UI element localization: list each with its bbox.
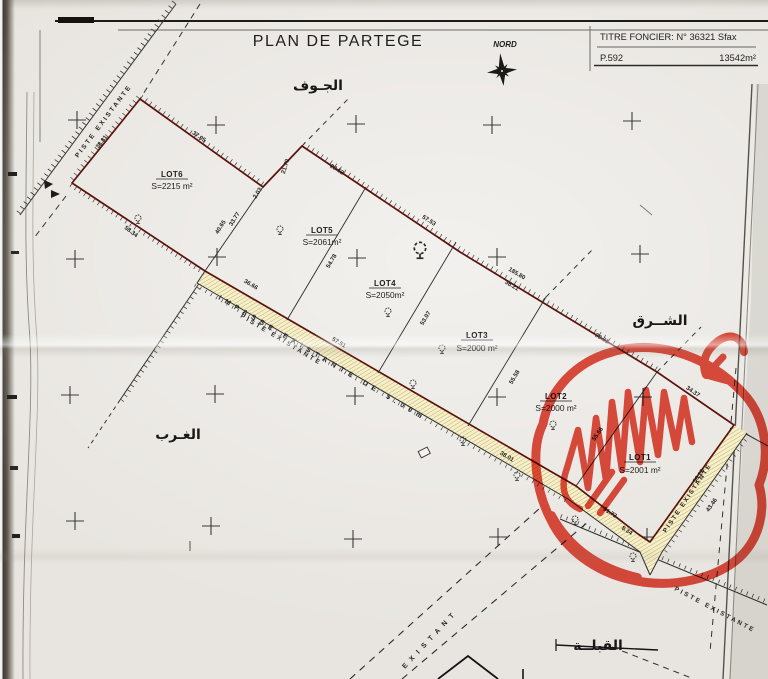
- lot-name: LOT6: [161, 170, 183, 179]
- building-symbol: [418, 447, 430, 458]
- olive-tree-icon: [514, 472, 520, 480]
- roads: [18, 2, 768, 679]
- olive-tree-icon: [277, 226, 283, 234]
- lot-area: S=2061m²: [303, 237, 342, 247]
- measurement: 23.53: [329, 164, 345, 177]
- road-label-existant: EXISTANT: [401, 608, 459, 670]
- lot-area: S=2000 m²: [456, 343, 497, 353]
- road-label-impasse: IMPASSE EXISTANTE DE 5.00m: [217, 295, 428, 423]
- map-symbols: [44, 180, 658, 679]
- measurement: 57.53: [421, 215, 437, 228]
- lot-label-lot3: LOT3 S=2000 m²: [456, 331, 497, 353]
- lot-area: S=2001 m²: [619, 465, 660, 475]
- lot-name: LOT4: [374, 279, 396, 288]
- measurement: 53.07: [420, 310, 433, 327]
- compass-label: NORD: [493, 40, 517, 49]
- measurement: 38.21: [504, 280, 521, 293]
- building-outline: [438, 656, 498, 679]
- measurement: 55.58: [509, 369, 522, 386]
- direction-east: الشــرق: [632, 313, 687, 329]
- lot-name: LOT5: [311, 226, 333, 235]
- olive-tree-icon: [135, 215, 141, 223]
- lot-name: LOT3: [466, 331, 488, 340]
- lot-label-lot5: LOT5 S=2061m²: [303, 226, 342, 247]
- measurement: 21.70: [281, 158, 292, 175]
- olive-tree-icon: [410, 380, 416, 388]
- plan-drawing: 38.81 37.05 58.34 40.65 33.77 2.03 21.70…: [0, 0, 768, 679]
- measurement: 36.66: [243, 279, 260, 292]
- lot-area: S=2050m²: [366, 290, 405, 300]
- olive-tree-icon: [630, 553, 636, 561]
- lot-area: S=2215 m²: [151, 181, 192, 191]
- lot-label-lot4: LOT4 S=2050m²: [366, 279, 405, 300]
- measurement: 185.80: [507, 267, 526, 282]
- direction-north: الجـوف: [293, 78, 343, 94]
- title-block-line1: TITRE FONCIER: N° 36321 Sfax: [600, 32, 737, 42]
- measurement-labels: 38.81 37.05 58.34 40.65 33.77 2.03 21.70…: [95, 130, 719, 537]
- lot-label-lot6: LOT6 S=2215 m²: [151, 170, 192, 191]
- measurement: 33.77: [229, 211, 242, 227]
- compass-rose: [485, 52, 518, 88]
- title-block-ref: P.592: [600, 53, 623, 63]
- direction-west: الغـرب: [155, 427, 201, 443]
- measurement: 54.78: [326, 253, 339, 270]
- direction-south: القبلــة: [573, 638, 623, 654]
- olive-tree-icon: [550, 421, 556, 429]
- measurement: 58.34: [123, 225, 139, 239]
- olive-tree-icon: [439, 345, 445, 353]
- junction-flag-icon: [44, 180, 60, 198]
- measurement: 43.46: [705, 497, 719, 513]
- measurement: 40.65: [215, 219, 228, 235]
- page-title: PLAN DE PARTEGE: [253, 33, 423, 50]
- olive-tree-icon: [385, 308, 391, 316]
- title-block: TITRE FONCIER: N° 36321 Sfax P.592 13542…: [590, 26, 758, 71]
- large-tree-icon: [414, 242, 425, 258]
- title-block-area: 13542m²: [719, 53, 756, 63]
- scanned-plan-document: 38.81 37.05 58.34 40.65 33.77 2.03 21.70…: [0, 0, 768, 679]
- measurement: 38.01: [594, 333, 611, 346]
- road-label-piste-lot1: PISTE EXISTANTE: [662, 462, 714, 534]
